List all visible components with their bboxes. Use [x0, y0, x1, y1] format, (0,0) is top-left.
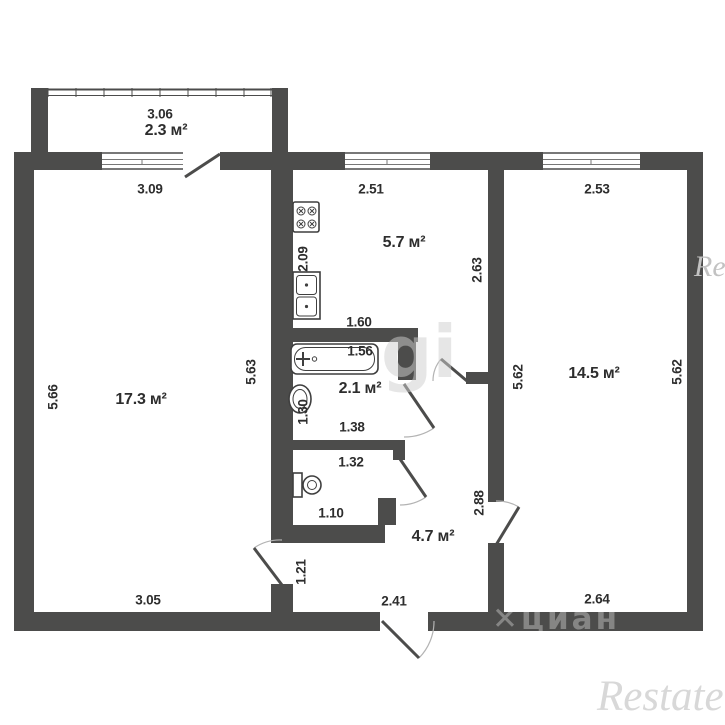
dim-toilet-bottom: 1.10: [318, 506, 343, 521]
window-right-room: [543, 152, 640, 170]
dim-bath-width: 1.60: [346, 315, 371, 330]
wall: [220, 152, 345, 170]
dim-left-window: 3.09: [137, 182, 162, 197]
door-leafs: [185, 154, 519, 658]
dim-hall-bottom: 2.41: [381, 594, 406, 609]
wall: [14, 612, 380, 631]
balcony-glazing: [48, 88, 272, 97]
watermark-restate-edge: Restate: [694, 252, 725, 282]
wall: [14, 152, 34, 631]
dim-bath-bottom: 1.38: [339, 420, 364, 435]
wall: [466, 372, 488, 384]
cian-logo-mark: ✕: [492, 601, 521, 637]
watermark-cian: ✕циан: [492, 604, 620, 635]
dim-kitchen-right: 2.63: [470, 257, 485, 282]
area-right-room: 14.5 м²: [568, 365, 619, 383]
wall: [271, 525, 385, 543]
wall: [271, 440, 393, 450]
dim-left-room-bottom: 3.05: [135, 593, 160, 608]
dim-right-room-left: 5.62: [511, 364, 526, 389]
door-leaf-right-room: [496, 507, 519, 545]
area-hallway: 4.7 м²: [412, 528, 455, 546]
window-kitchen: [345, 152, 430, 170]
dim-balcony-width: 3.06: [147, 107, 172, 122]
dim-left-room-right: 5.63: [244, 359, 259, 384]
area-bathroom: 2.1 м²: [339, 380, 382, 398]
dim-washbasin: 1.30: [296, 399, 311, 424]
windows: [102, 152, 640, 170]
window-left-room: [102, 152, 183, 170]
dim-hall-door: 1.21: [294, 559, 309, 584]
dim-right-room-right: 5.62: [670, 359, 685, 384]
dim-hall-right: 2.88: [472, 490, 487, 515]
toilet-icon: [293, 473, 321, 497]
wall: [271, 170, 293, 538]
wall: [378, 498, 396, 525]
area-balcony: 2.3 м²: [145, 122, 188, 140]
watermark-restate: Restate: [597, 675, 724, 718]
door-leaf-toilet: [400, 459, 426, 497]
door-leaf-left-room: [254, 548, 282, 585]
dim-kitchen-left: 2.09: [296, 246, 311, 271]
floorplan: gi: [0, 0, 725, 725]
area-left-room: 17.3 м²: [115, 391, 166, 409]
dim-bathtub: 1.56: [347, 344, 372, 359]
wall: [393, 440, 405, 460]
wall: [272, 88, 288, 152]
cian-logo-text: циан: [521, 601, 620, 637]
wall: [430, 152, 543, 170]
dim-kitchen-window: 2.51: [358, 182, 383, 197]
area-kitchen: 5.7 м²: [383, 234, 426, 252]
doors: [185, 154, 519, 658]
dim-left-room-left: 5.66: [46, 384, 61, 409]
wall: [31, 88, 48, 152]
watermark-photo: gi: [381, 316, 457, 388]
sink-icon: [293, 272, 320, 319]
door-leaf-balcony: [185, 154, 220, 177]
wall: [271, 584, 293, 612]
dim-right-window: 2.53: [584, 182, 609, 197]
stove-icon: [293, 202, 319, 232]
dim-toilet-top: 1.32: [338, 455, 363, 470]
wall: [687, 152, 703, 631]
wall: [488, 170, 504, 502]
door-leaf-entrance: [382, 621, 419, 658]
